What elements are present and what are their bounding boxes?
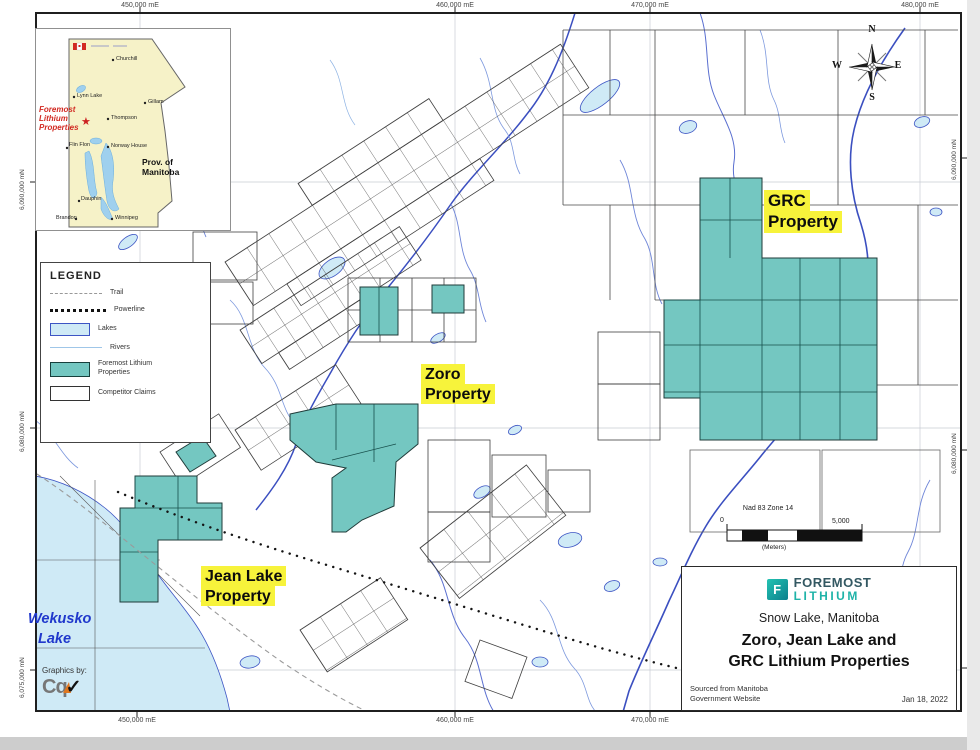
legend-item-foremost-properties: Foremost Lithium Properties	[50, 360, 201, 378]
inset-city-label: Gillam	[148, 99, 164, 105]
inset-city-label: Flin Flon	[69, 142, 90, 148]
source-note: Sourced from Manitoba Government Website	[690, 684, 768, 704]
map-title: Zoro, Jean Lake and GRC Lithium Properti…	[682, 631, 956, 673]
inset-city-label: Norway House	[111, 143, 147, 149]
zoro-property-shape-b	[432, 285, 464, 313]
map-location-label: Snow Lake, Manitoba	[682, 611, 956, 625]
checkmark-icon: ✓	[66, 677, 82, 698]
inset-province-label: Prov. of Manitoba	[142, 157, 202, 177]
scalebar-datum-label: Nad 83 Zone 14	[723, 505, 813, 512]
compass-rose-icon	[849, 44, 895, 90]
claims-swatch-icon	[50, 386, 90, 401]
scalebar-graphic	[727, 524, 862, 541]
legend-item-rivers: Rivers	[50, 344, 201, 353]
trail-swatch-icon	[50, 293, 102, 294]
legend-item-lakes: Lakes	[50, 323, 201, 336]
compass-w-label: W	[831, 60, 843, 71]
map-date: Jan 18, 2022	[902, 695, 948, 704]
brand-name-bottom: LITHIUM	[794, 590, 872, 603]
rivers-swatch-icon	[50, 347, 102, 348]
inset-city-label: Churchill	[116, 56, 137, 62]
foremost-logo-icon: F	[767, 579, 788, 600]
wekusko-lake-label: Wekusko Lake	[28, 610, 91, 649]
zoro-property-chain-shape	[290, 404, 418, 532]
coord-label-left: 6,090,000 mN	[19, 169, 26, 210]
coord-label-top: 480,000 mE	[885, 2, 955, 9]
legend-item-powerline: Powerline	[50, 306, 201, 315]
foremost-swatch-icon	[50, 362, 90, 377]
coord-label-left: 6,080,000 mN	[19, 411, 26, 452]
legend: LEGEND Trail Powerline Lakes Rivers Fore…	[40, 262, 211, 443]
powerline-swatch-icon	[50, 309, 106, 312]
coord-label-top: 470,000 mE	[615, 2, 685, 9]
compass-e-label: E	[892, 60, 904, 71]
coord-label-top: 460,000 mE	[420, 2, 490, 9]
compass-n-label: N	[866, 24, 878, 35]
page-bottom-strip	[0, 737, 980, 750]
legend-title: LEGEND	[50, 270, 201, 282]
inset-city-label: Winnipeg	[115, 215, 138, 221]
zoro-property-label: Zoro Property	[421, 364, 495, 404]
credits: Graphics by: Cq✓	[42, 666, 87, 699]
brand-name-top: FOREMOST	[794, 576, 872, 590]
foremost-lithium-logo: F FOREMOST LITHIUM	[682, 576, 956, 603]
scalebar-max-label: 5,000	[832, 518, 850, 525]
coord-label-bottom: 450,000 mE	[102, 717, 172, 724]
inset-city-label: Brandon	[56, 215, 77, 221]
coord-label-bottom: 460,000 mE	[420, 717, 490, 724]
grc-property-label: GRC Property	[764, 190, 842, 233]
graphics-by-label: Graphics by:	[42, 666, 87, 675]
inset-city-label: Thompson	[111, 115, 137, 121]
legend-item-competitor-claims: Competitor Claims	[50, 386, 201, 401]
compass-s-label: S	[866, 92, 878, 103]
inset-marker-label: Foremost Lithium Properties	[39, 105, 93, 133]
scalebar-zero-label: 0	[720, 517, 724, 524]
title-block: F FOREMOST LITHIUM Snow Lake, Manitoba Z…	[681, 566, 957, 711]
coord-label-right: 6,080,000 mN	[951, 433, 958, 474]
map-sheet: 450,000 mE 460,000 mE 470,000 mE 480,000…	[0, 0, 980, 750]
page-right-strip	[967, 0, 980, 750]
coord-label-bottom: 470,000 mE	[615, 717, 685, 724]
coord-label-left: 6,075,000 mN	[19, 657, 26, 698]
coord-label-top: 450,000 mE	[105, 2, 175, 9]
inset-city-label: Lynn Lake	[77, 93, 102, 99]
lakes-swatch-icon	[50, 323, 90, 336]
coord-label-right: 6,090,000 mN	[951, 139, 958, 180]
jean-lake-property-label: Jean Lake Property	[201, 566, 286, 606]
inset-map: ★ Churchill Lynn Lake Gillam Thompson Fl…	[35, 28, 231, 231]
scalebar-units-label: (Meters)	[762, 544, 786, 551]
legend-item-trail: Trail	[50, 289, 201, 298]
inset-city-label: Dauphin	[81, 196, 102, 202]
